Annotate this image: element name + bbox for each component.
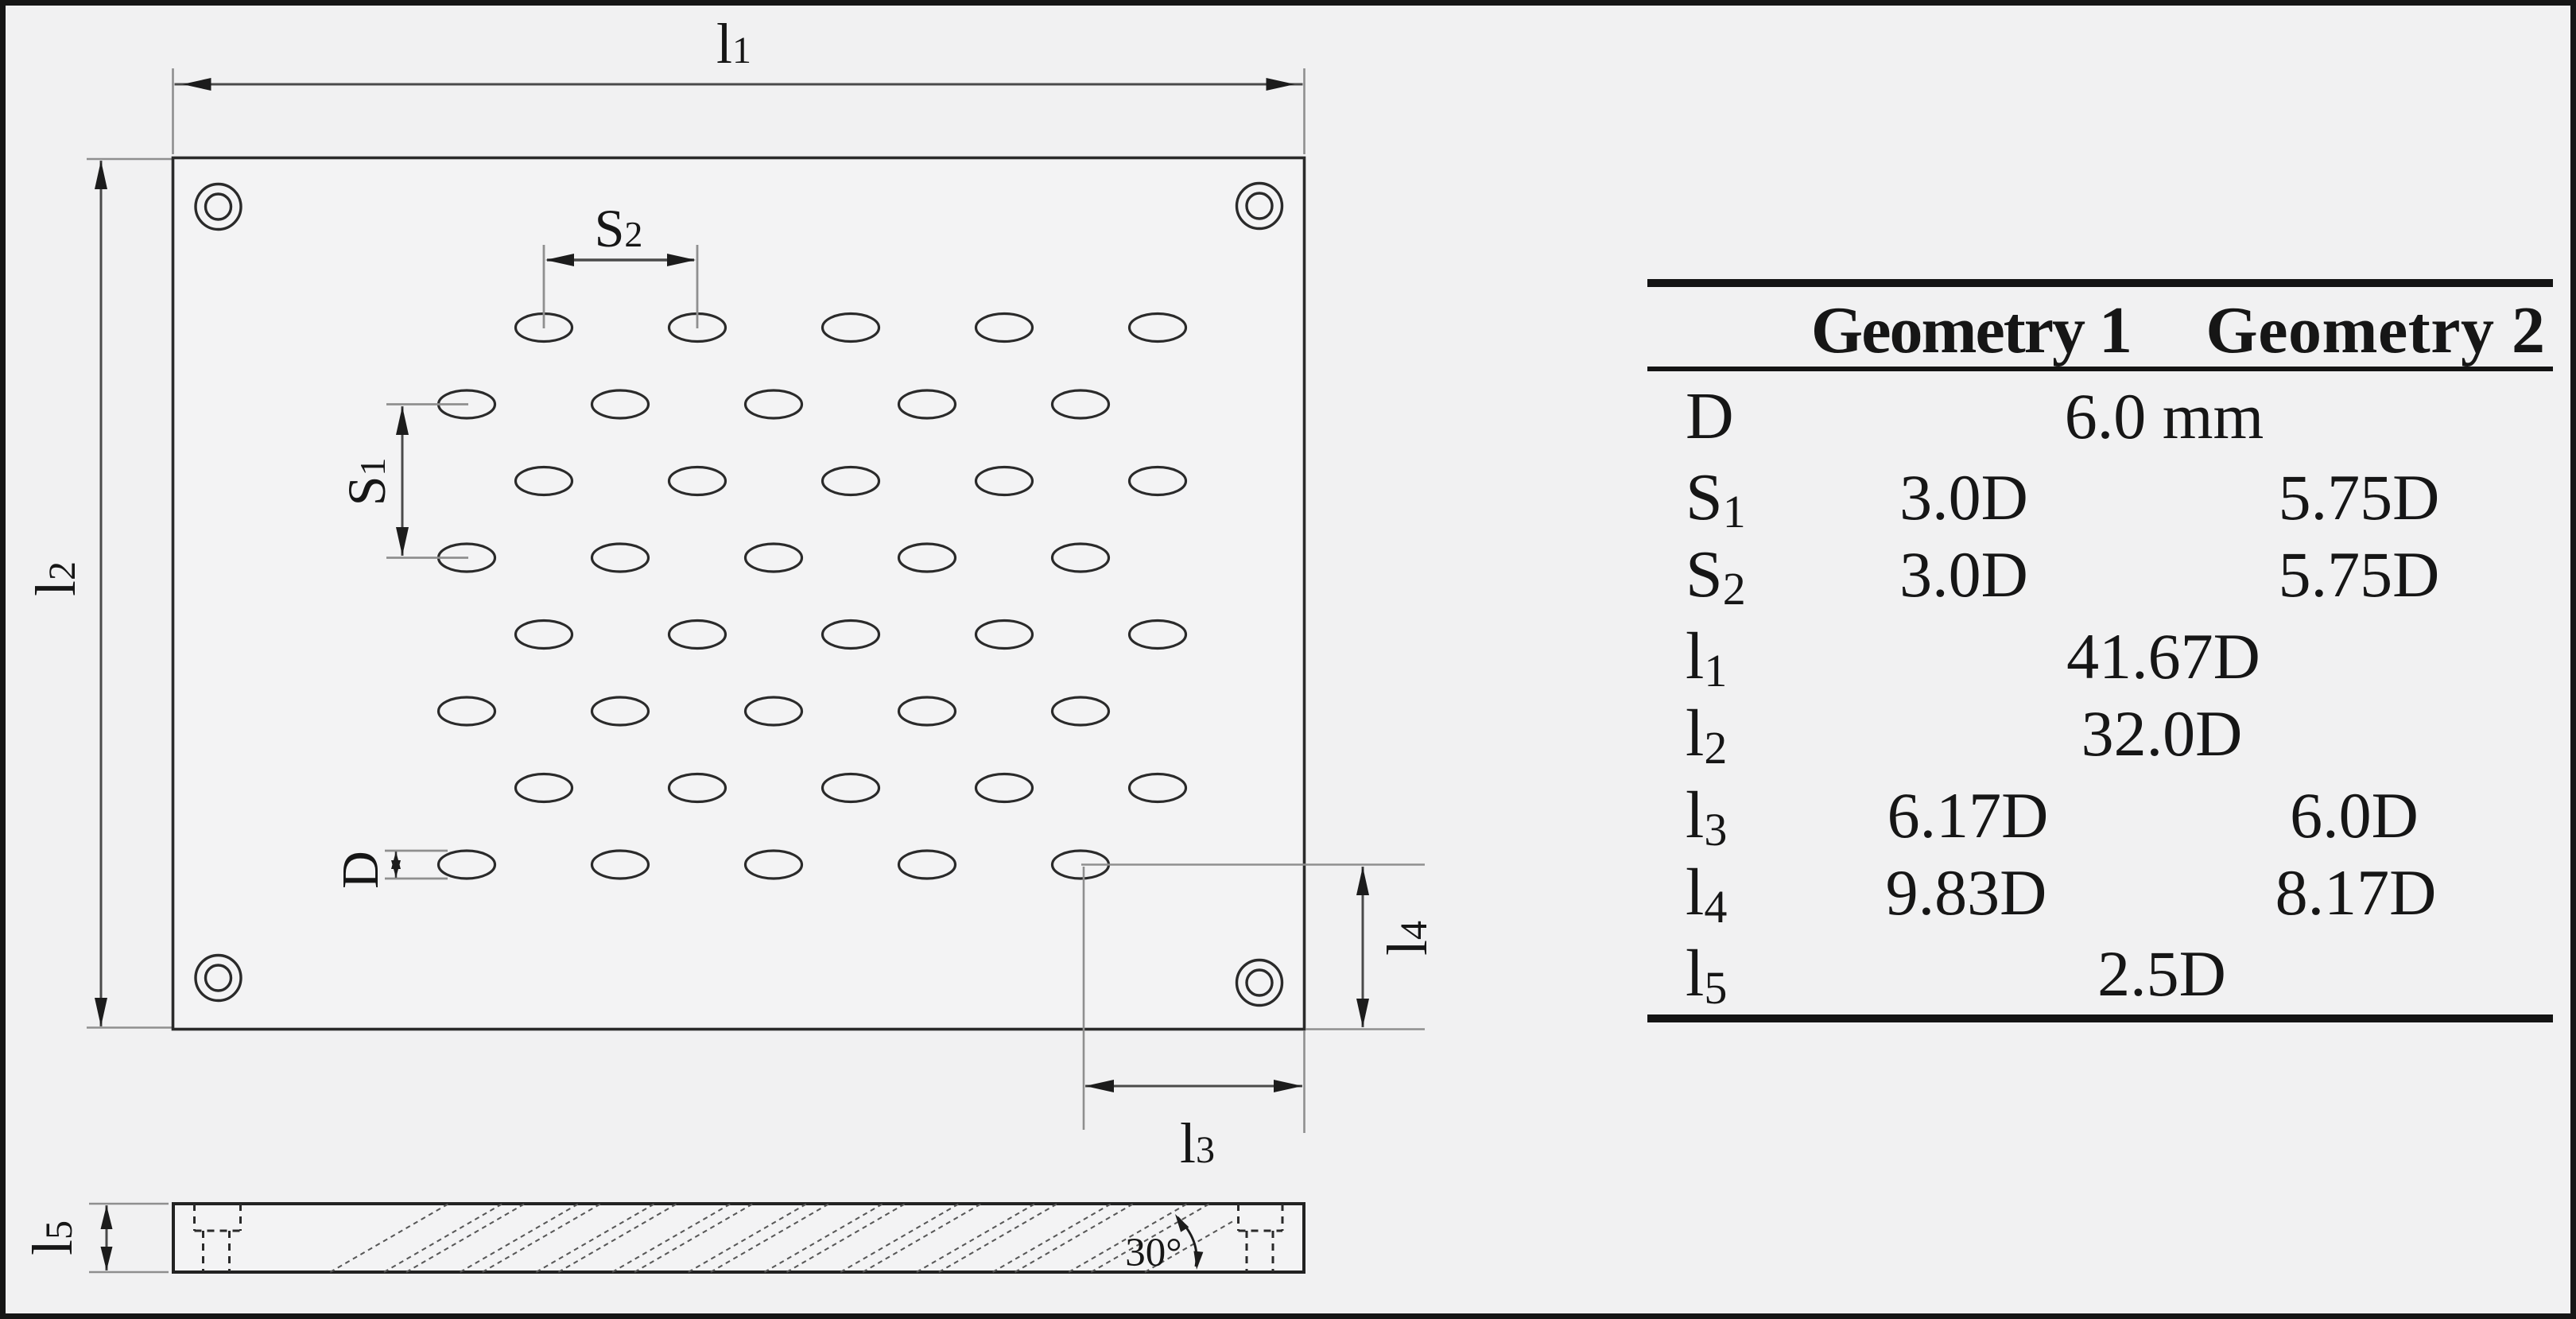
svg-text:41.67D: 41.67D xyxy=(2066,620,2260,692)
svg-text:2.5D: 2.5D xyxy=(2097,937,2226,1010)
svg-text:5.75D: 5.75D xyxy=(2279,538,2440,611)
svg-text:Geometry 2: Geometry 2 xyxy=(2206,293,2545,367)
svg-text:D: D xyxy=(1686,379,1734,453)
svg-text:8.17D: 8.17D xyxy=(2275,856,2437,929)
svg-text:9.83D: 9.83D xyxy=(1886,856,2047,929)
svg-text:6.0 mm: 6.0 mm xyxy=(2065,380,2264,452)
svg-text:6.0D: 6.0D xyxy=(2290,779,2419,852)
svg-text:32.0D: 32.0D xyxy=(2081,697,2243,770)
svg-text:3.0D: 3.0D xyxy=(1899,538,2028,611)
svg-text:3.0D: 3.0D xyxy=(1899,461,2028,533)
svg-text:D: D xyxy=(332,851,390,889)
svg-text:5.75D: 5.75D xyxy=(2279,461,2440,533)
svg-text:6.17D: 6.17D xyxy=(1887,779,2049,852)
svg-text:30°: 30° xyxy=(1125,1231,1181,1275)
svg-text:Geometry 1: Geometry 1 xyxy=(1811,293,2131,367)
